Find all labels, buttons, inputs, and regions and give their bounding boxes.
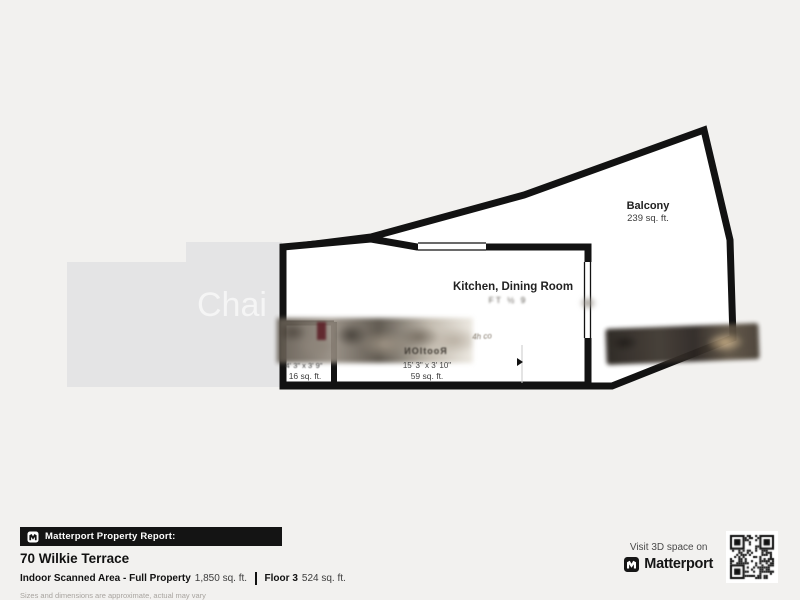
- scanned-area-label: Indoor Scanned Area - Full Property: [20, 573, 191, 584]
- matterport-brand-text: Matterport: [644, 556, 713, 572]
- report-badge-label: Matterport Property Report:: [45, 531, 176, 542]
- report-badge-bar: Matterport Property Report:: [20, 527, 282, 546]
- kitchen-room: [283, 239, 588, 385]
- visit-3d-text: Visit 3D space on: [630, 542, 708, 553]
- property-address: 70 Wilkie Terrace: [20, 551, 400, 566]
- visit-3d-cta: Visit 3D space on Matterport: [624, 531, 778, 583]
- disclaimer-text: Sizes and dimensions are approximate, ac…: [20, 591, 400, 600]
- floor-label: Floor 3: [265, 573, 298, 584]
- scanned-area-value: 1,850 sq. ft.: [195, 573, 247, 584]
- property-report-footer: Matterport Property Report: 70 Wilkie Te…: [20, 527, 400, 600]
- window-right-wall: [582, 262, 594, 338]
- matterport-logo-icon: [624, 557, 639, 572]
- floor-plan: Chai: [0, 0, 800, 600]
- matterport-logo-icon: [27, 531, 39, 543]
- matterport-wordmark: Matterport: [624, 556, 713, 572]
- window-top-wall: [418, 241, 486, 252]
- qr-code: [726, 531, 778, 583]
- stats-divider: [255, 572, 257, 585]
- watermark-text: Chai: [197, 286, 267, 324]
- area-stats: Indoor Scanned Area - Full Property 1,85…: [20, 572, 400, 585]
- floor-area-value: 524 sq. ft.: [302, 573, 346, 584]
